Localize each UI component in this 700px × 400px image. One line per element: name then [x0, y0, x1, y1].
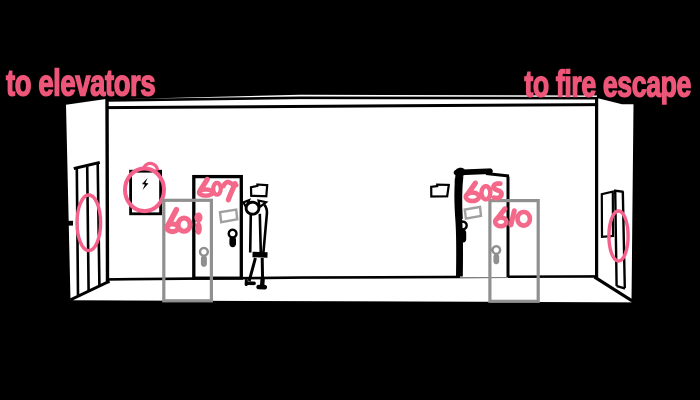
- svg-text:to fire escape: to fire escape: [524, 63, 691, 104]
- svg-text:to elevators: to elevators: [6, 63, 155, 104]
